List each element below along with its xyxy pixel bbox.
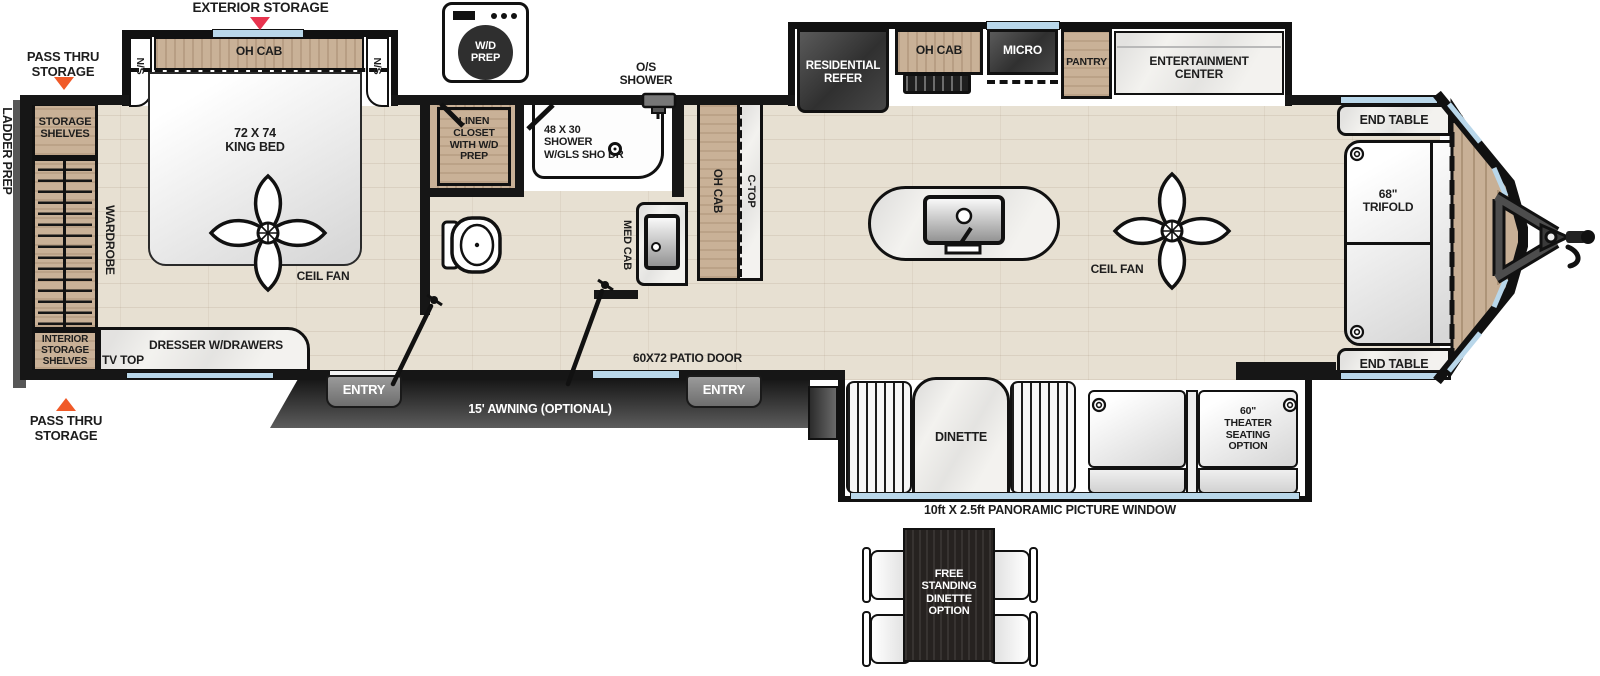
free-dinette-chairback-br xyxy=(1029,611,1038,667)
patio-door-label: 60X72 PATIO DOOR xyxy=(595,352,780,365)
entry-right-label: ENTRY xyxy=(686,383,762,398)
trifold-cushion-split xyxy=(1347,242,1431,245)
bedroom-ceil-fan-label: CEIL FAN xyxy=(292,270,354,283)
rear-wall xyxy=(20,95,32,380)
pass-thru-bottom-arrow xyxy=(56,398,76,411)
living-ceil-fan-label: CEIL FAN xyxy=(1086,263,1148,276)
dinette-label: DINETTE xyxy=(912,430,1010,444)
kitchen-slide-window xyxy=(986,21,1060,30)
hitch-ball-icon xyxy=(1581,230,1595,244)
bottom-wall-step xyxy=(1236,362,1336,380)
bath-left-wall xyxy=(420,103,430,315)
wardrobe-label: WARDROBE xyxy=(103,200,117,280)
hitch-jack-handle xyxy=(1568,247,1578,266)
entertainment-center-label: ENTERTAINMENT CENTER xyxy=(1114,55,1284,82)
c-top-dashed-line xyxy=(738,107,742,277)
tv-top-label: TV TOP xyxy=(102,354,162,367)
free-dinette-chairback-tl xyxy=(862,547,871,603)
pass-thru-bottom-label: PASS THRU STORAGE xyxy=(10,414,122,443)
entry-step xyxy=(808,386,838,440)
linen-bottom-wall xyxy=(424,188,524,197)
top-wall-mid xyxy=(391,95,795,105)
shower-label: 48 X 30 SHOWER W/GLS SHO DR xyxy=(544,124,656,161)
kitchen-island xyxy=(868,186,1060,261)
bath-bottom-wall xyxy=(594,290,638,299)
end-table-top-label: END TABLE xyxy=(1337,113,1451,127)
pass-thru-top-arrow xyxy=(54,77,74,90)
picture-window-label: 10ft X 2.5ft PANORAMIC PICTURE WINDOW xyxy=(810,503,1290,517)
linen-right-wall xyxy=(515,103,524,197)
residential-refer-label: RESIDENTIAL REFER xyxy=(797,60,889,86)
pantry-label: PANTRY xyxy=(1059,57,1114,69)
exterior-storage-arrow xyxy=(250,17,270,30)
theater-console xyxy=(1186,390,1198,494)
range-cooktop xyxy=(903,73,971,94)
kitchen-oh-cab-label: OH CAB xyxy=(895,44,983,57)
front-top-window xyxy=(1340,96,1438,104)
free-dinette-chairback-bl xyxy=(862,611,871,667)
front-nose-windows xyxy=(1449,104,1506,371)
king-bed xyxy=(148,72,362,266)
entry-left-label: ENTRY xyxy=(326,383,402,398)
ladder-prep-label: LADDER PREP xyxy=(0,105,14,197)
rv-floorplan: OH CAB N/S N/S 72 X 74 KING BED CEIL FAN… xyxy=(0,0,1600,676)
bedroom-oh-cab-label: OH CAB xyxy=(204,45,314,58)
linen-closet-label: LINEN CLOSET WITH W/D PREP xyxy=(437,116,511,163)
med-cab-label: MED CAB xyxy=(621,216,633,274)
hitch-coupler-icon xyxy=(1546,232,1556,242)
end-table-bottom-label: END TABLE xyxy=(1337,357,1451,371)
entertainment-center-line xyxy=(1117,46,1281,48)
hitch-ball-mount xyxy=(1566,231,1586,243)
bedroom-oh-cab-dashed-line xyxy=(131,68,389,72)
wardrobe-rod xyxy=(63,161,66,327)
os-shower-label: O/S SHOWER xyxy=(612,61,680,88)
hitch-frame-outline xyxy=(1496,197,1556,278)
hitch-frame xyxy=(1496,197,1556,278)
storage-shelves-label: STORAGE SHELVES xyxy=(32,116,98,141)
awning-label: 15' AWNING (OPTIONAL) xyxy=(390,402,690,416)
trifold-back-line xyxy=(1430,142,1433,344)
free-dinette-chairback-tr xyxy=(1029,547,1038,603)
free-standing-dinette-label: FREE STANDING DINETTE OPTION xyxy=(903,568,995,617)
exterior-storage-label: EXTERIOR STORAGE xyxy=(158,0,363,15)
bath-sink-counter xyxy=(636,202,688,286)
micro-counter-dashed xyxy=(987,80,1058,84)
theater-footrest-right xyxy=(1198,468,1298,494)
micro-label: MICRO xyxy=(987,44,1058,57)
washer-detergent-drawer xyxy=(453,11,475,20)
hitch-coupler-plate xyxy=(1541,225,1568,250)
dinette-bench-left xyxy=(846,381,912,494)
front-oh-cab-label: OH CAB xyxy=(1460,205,1474,269)
front-bottom-window xyxy=(1340,372,1438,380)
wd-prep-label: W/D PREP xyxy=(458,40,513,65)
bedroom-slide-window xyxy=(212,29,304,38)
panoramic-picture-window xyxy=(850,492,1300,500)
pass-thru-top-label: PASS THRU STORAGE xyxy=(8,50,118,79)
washer-dryer-icon: W/D PREP xyxy=(442,2,529,83)
rear-bottom-window xyxy=(126,372,274,379)
c-top-label: C-TOP xyxy=(745,166,757,216)
king-bed-label: 72 X 74 KING BED xyxy=(185,126,325,154)
patio-door-window xyxy=(592,370,680,379)
nightstand-right-label: N/S xyxy=(371,51,383,81)
top-wall-left xyxy=(20,95,129,105)
nightstand-left-label: N/S xyxy=(134,51,146,81)
shower-right-wall xyxy=(672,95,684,197)
dinette-bench-right xyxy=(1010,381,1076,494)
theater-footrest-left xyxy=(1088,468,1186,494)
theater-cushion-left xyxy=(1088,390,1186,468)
interior-storage-shelves-label: INTERIOR STORAGE SHELVES xyxy=(32,334,98,368)
dresser-label: DRESSER W/DRAWERS xyxy=(126,339,306,352)
trifold-label: 68" TRIFOLD xyxy=(1348,188,1428,215)
washer-buttons xyxy=(491,13,521,19)
theater-seating-label: 60" THEATER SEATING OPTION xyxy=(1200,406,1296,453)
bath-oh-cab-label: OH CAB xyxy=(711,161,723,221)
